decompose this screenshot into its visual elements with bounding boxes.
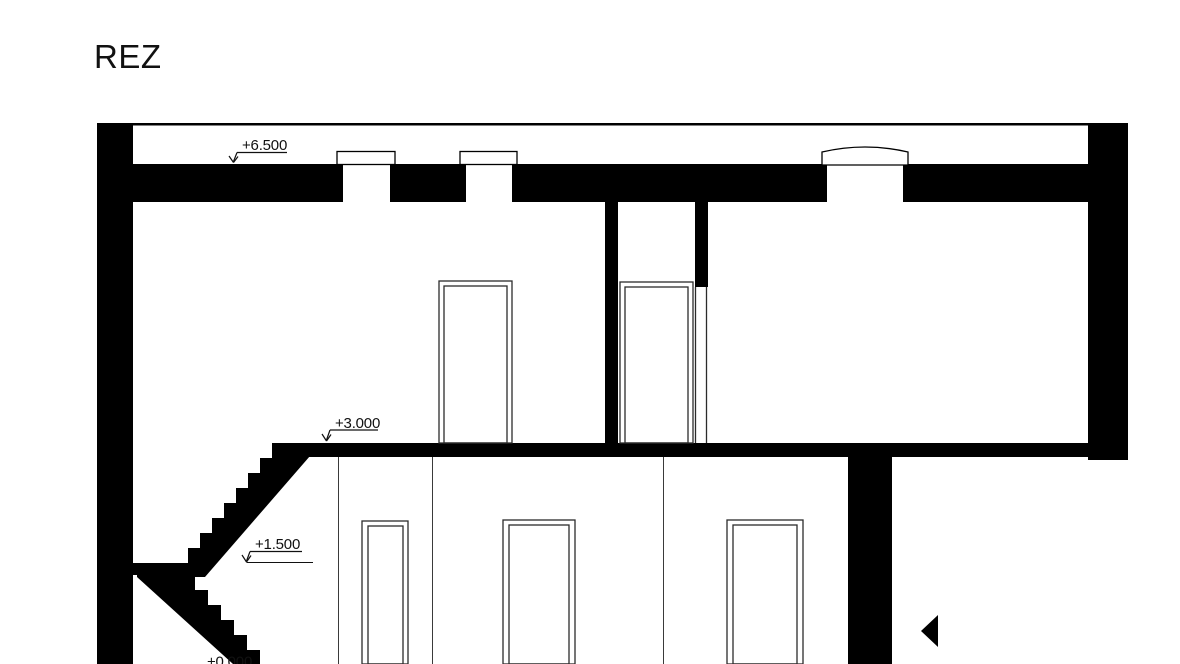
ceiling-slab [97, 164, 1128, 202]
level-label-6500: +6.500 [242, 137, 287, 154]
upper-partition-wall [605, 202, 618, 443]
chimney-1 [337, 152, 395, 203]
stair-landing-slab [97, 563, 195, 575]
roof-line [97, 123, 1128, 126]
chimney-2-cap [460, 152, 517, 165]
level-label-1500: +1.500 [255, 536, 300, 553]
section-drawing: REZ [0, 0, 1180, 664]
ground-right-wall [848, 455, 892, 664]
drawing-title: REZ [94, 38, 162, 75]
skylight-dome-cap [822, 147, 908, 165]
floor-slab [272, 443, 1128, 457]
level-label-0000: +0.000 [207, 654, 252, 664]
section-drawing-sheet: REZ [0, 0, 1180, 664]
chimney-2 [460, 152, 517, 203]
left-wall [97, 125, 133, 664]
level-marker-0000: +0.000 [207, 654, 252, 664]
chimney-1-cap [337, 152, 395, 165]
upper-door-header-wall [695, 202, 708, 287]
skylight-dome [822, 147, 908, 202]
